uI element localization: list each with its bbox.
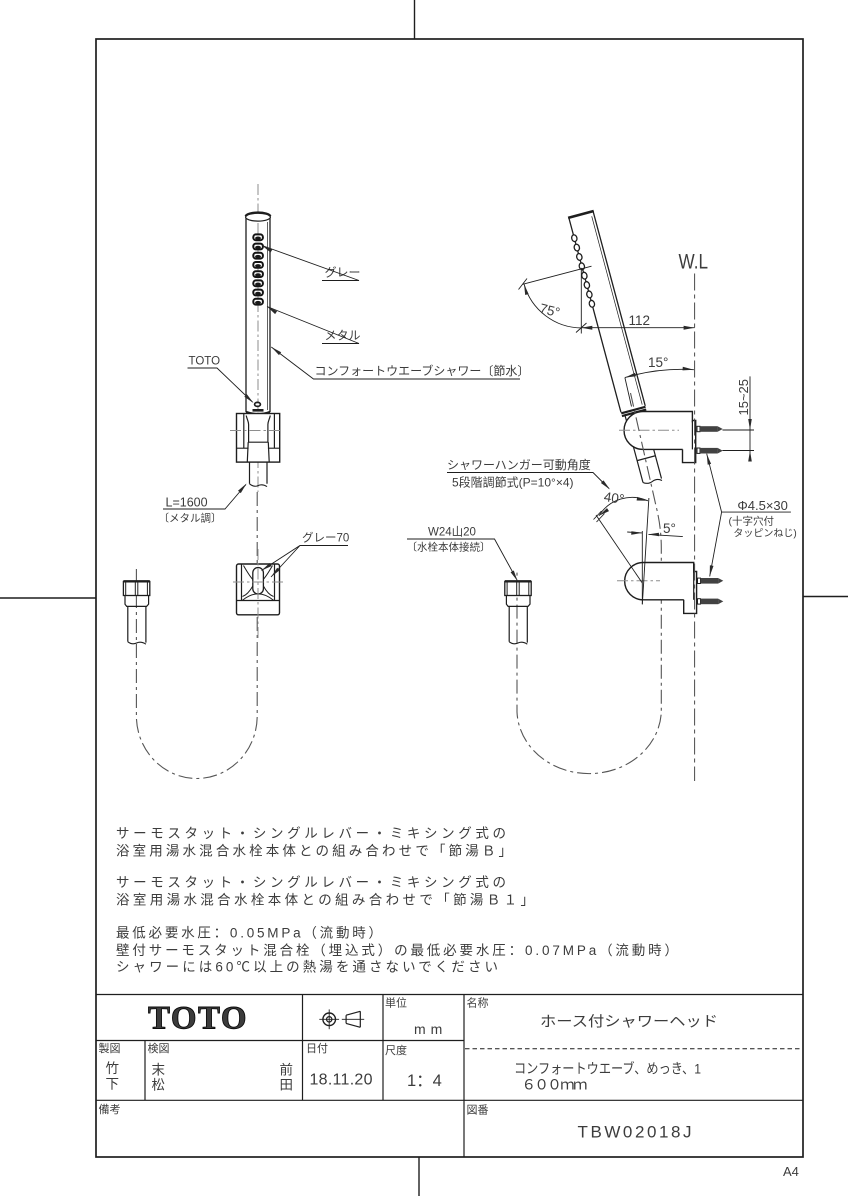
svg-text:サーモスタット・シングルレバー・ミキシング式の: サーモスタット・シングルレバー・ミキシング式の <box>116 826 506 841</box>
svg-text:日付: 日付 <box>306 1042 328 1055</box>
svg-text:単位: 単位 <box>385 996 407 1010</box>
svg-text:下: 下 <box>106 1077 120 1092</box>
svg-text:1：4: 1：4 <box>407 1072 442 1090</box>
svg-text:Φ4.5×30: Φ4.5×30 <box>737 498 788 513</box>
svg-text:名称: 名称 <box>467 996 489 1010</box>
svg-text:TOTO: TOTO <box>148 1001 250 1037</box>
svg-text:L=1600: L=1600 <box>166 496 208 510</box>
svg-text:15~25: 15~25 <box>736 379 751 416</box>
svg-text:(十字穴付: (十字穴付 <box>729 515 775 528</box>
svg-text:壁付サーモスタット混合栓（埋込式）の最低必要水圧：0.07M: 壁付サーモスタット混合栓（埋込式）の最低必要水圧：0.07MPa（流動時） <box>116 943 678 958</box>
svg-text:TBW02018J: TBW02018J <box>578 1123 692 1142</box>
svg-text:グレー70: グレー70 <box>302 531 349 545</box>
svg-text:タッピンねじ): タッピンねじ) <box>733 528 796 540</box>
svg-text:前: 前 <box>280 1062 294 1078</box>
svg-text:15°: 15° <box>648 355 668 370</box>
svg-text:コンフォートウエーブ、めっき、1: コンフォートウエーブ、めっき、1 <box>514 1061 701 1077</box>
svg-text:シャワーハンガー可動角度: シャワーハンガー可動角度 <box>447 457 591 472</box>
svg-text:A4: A4 <box>783 1164 799 1179</box>
svg-text:最低必要水圧：0.05MPa（流動時）: 最低必要水圧：0.05MPa（流動時） <box>116 926 382 941</box>
svg-text:コンフォートウエーブシャワー〔節水〕: コンフォートウエーブシャワー〔節水〕 <box>315 363 530 378</box>
svg-text:TOTO: TOTO <box>189 356 221 368</box>
svg-text:サーモスタット・シングルレバー・ミキシング式の: サーモスタット・シングルレバー・ミキシング式の <box>116 875 506 890</box>
svg-text:〔水栓本体接続〕: 〔水栓本体接続〕 <box>407 541 491 554</box>
svg-text:メタル: メタル <box>325 329 361 343</box>
svg-text:松: 松 <box>152 1078 166 1093</box>
svg-text:〔メタル調〕: 〔メタル調〕 <box>159 512 222 525</box>
svg-text:mm: mm <box>414 1021 447 1037</box>
svg-text:６００ｍｍ: ６００ｍｍ <box>522 1078 588 1094</box>
svg-text:検図: 検図 <box>148 1041 170 1055</box>
svg-text:シャワーには60℃以上の熱湯を通さないでください: シャワーには60℃以上の熱湯を通さないでください <box>116 959 498 975</box>
svg-text:112: 112 <box>629 313 651 328</box>
svg-text:18.11.20: 18.11.20 <box>310 1072 373 1089</box>
svg-text:尺度: 尺度 <box>385 1043 407 1057</box>
svg-text:ホース付シャワーヘッド: ホース付シャワーヘッド <box>540 1014 718 1031</box>
svg-text:末: 末 <box>152 1063 166 1078</box>
svg-text:40°: 40° <box>603 489 625 507</box>
svg-text:田: 田 <box>280 1078 294 1093</box>
svg-text:W.L: W.L <box>679 251 709 274</box>
svg-text:竹: 竹 <box>106 1061 120 1076</box>
svg-text:5°: 5° <box>663 521 676 536</box>
svg-text:グレー: グレー <box>325 266 361 280</box>
svg-text:備考: 備考 <box>99 1103 121 1116</box>
svg-text:5段階調節式(P=10°×4): 5段階調節式(P=10°×4) <box>452 475 574 490</box>
svg-text:製図: 製図 <box>99 1041 121 1055</box>
svg-text:W24山20: W24山20 <box>428 526 476 539</box>
svg-text:図番: 図番 <box>467 1104 489 1117</box>
svg-text:浴室用湯水混合水栓本体との組み合わせで「節湯Ｂ１」: 浴室用湯水混合水栓本体との組み合わせで「節湯Ｂ１」 <box>116 892 534 908</box>
